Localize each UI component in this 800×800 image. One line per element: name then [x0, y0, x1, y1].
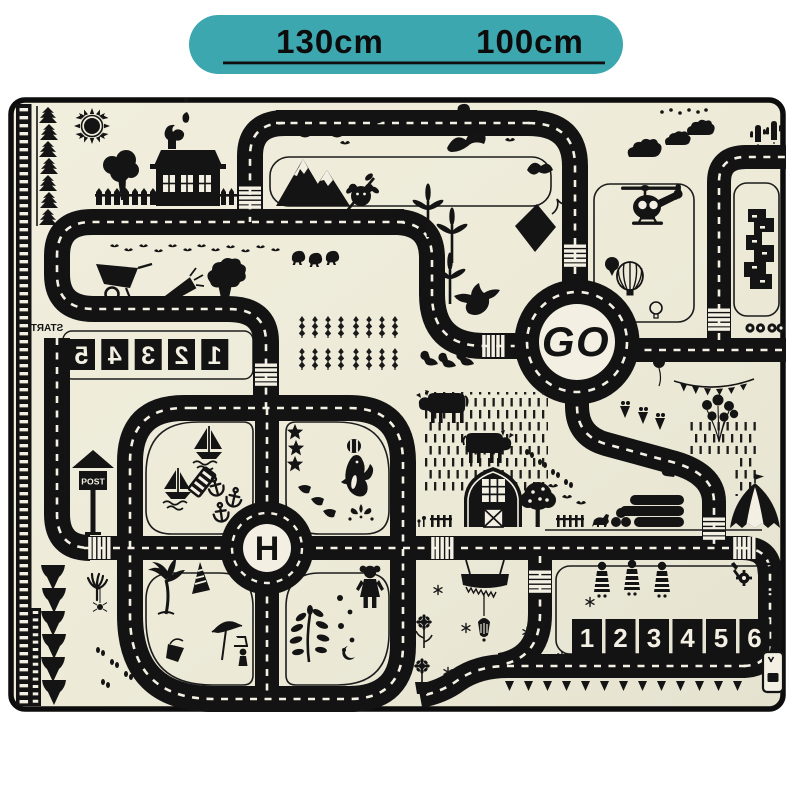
- svg-text:H: H: [255, 530, 280, 568]
- svg-text:100cm: 100cm: [476, 23, 584, 60]
- svg-text:4: 4: [680, 623, 695, 653]
- svg-text:3: 3: [647, 623, 661, 653]
- svg-text:2: 2: [613, 623, 627, 653]
- svg-text:GO: GO: [542, 318, 610, 365]
- svg-text:START: START: [31, 323, 64, 334]
- svg-text:130cm: 130cm: [276, 23, 384, 60]
- svg-text:POST: POST: [81, 477, 105, 487]
- svg-text:4: 4: [108, 342, 122, 370]
- svg-text:5: 5: [74, 342, 88, 370]
- svg-text:1: 1: [208, 342, 222, 370]
- svg-text:3: 3: [141, 342, 155, 370]
- svg-text:2: 2: [175, 342, 189, 370]
- svg-text:1: 1: [580, 623, 594, 653]
- svg-text:6: 6: [747, 623, 761, 653]
- svg-text:5: 5: [714, 623, 728, 653]
